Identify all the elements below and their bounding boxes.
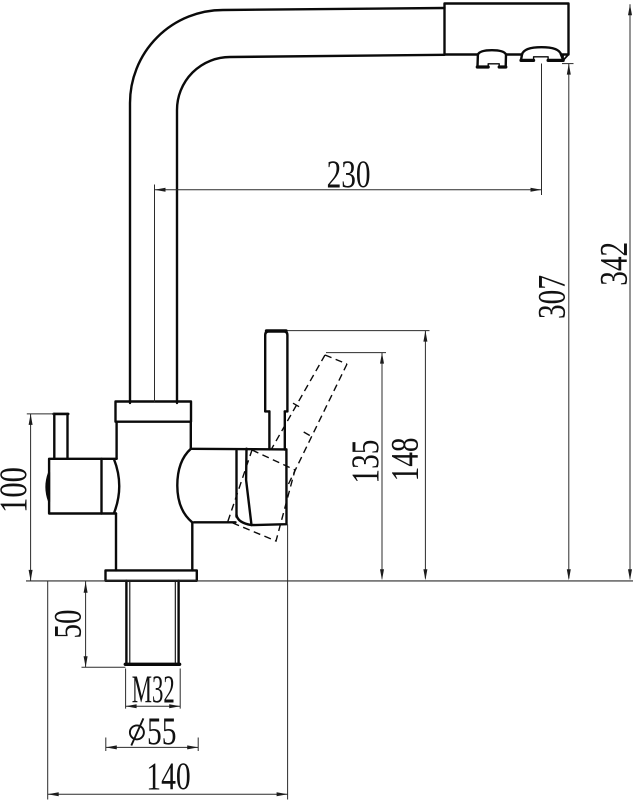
svg-text:148: 148 (384, 437, 427, 481)
svg-text:135: 135 (344, 440, 387, 484)
svg-text:307: 307 (531, 275, 574, 319)
svg-text:140: 140 (146, 755, 191, 798)
svg-text:55: 55 (147, 710, 177, 753)
svg-text:50: 50 (47, 610, 90, 639)
svg-text:100: 100 (0, 467, 35, 513)
svg-text:342: 342 (593, 242, 635, 286)
svg-text:M32: M32 (132, 668, 175, 711)
svg-text:230: 230 (327, 153, 371, 196)
